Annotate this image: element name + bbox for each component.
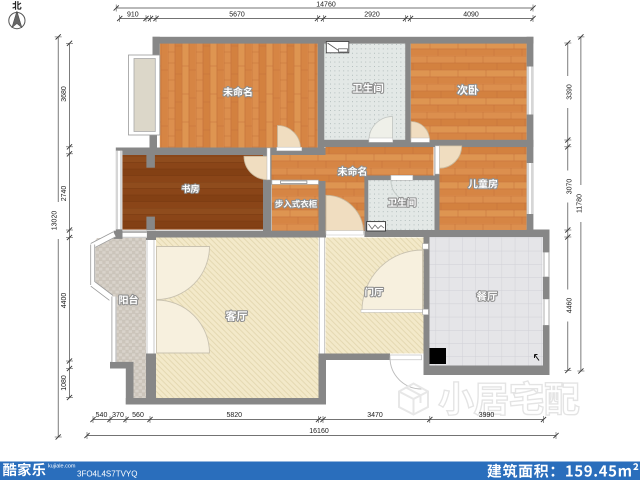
svg-text:4090: 4090 <box>463 12 479 19</box>
svg-text:3470: 3470 <box>367 412 383 419</box>
svg-text:3FO4L4S7TVYQ: 3FO4L4S7TVYQ <box>77 469 137 478</box>
svg-text:4400: 4400 <box>61 293 68 309</box>
svg-text:3990: 3990 <box>479 412 495 419</box>
svg-text:5820: 5820 <box>227 412 243 419</box>
svg-text:3390: 3390 <box>567 84 574 100</box>
svg-text:4460: 4460 <box>567 298 574 314</box>
svg-text:370: 370 <box>112 412 124 419</box>
svg-text:16160: 16160 <box>309 428 329 435</box>
svg-text:910: 910 <box>127 12 139 19</box>
svg-text:14760: 14760 <box>316 2 336 9</box>
svg-text:2740: 2740 <box>61 186 68 202</box>
svg-text:13020: 13020 <box>52 211 59 231</box>
svg-text:560: 560 <box>132 412 144 419</box>
svg-text:1080: 1080 <box>61 375 68 391</box>
svg-text:kujiale.com: kujiale.com <box>48 464 76 470</box>
svg-text:2920: 2920 <box>364 12 380 19</box>
svg-text:5670: 5670 <box>229 12 245 19</box>
svg-text:3680: 3680 <box>61 86 68 102</box>
svg-text:540: 540 <box>96 412 108 419</box>
svg-text:11780: 11780 <box>577 194 584 213</box>
svg-text:3070: 3070 <box>567 179 574 195</box>
